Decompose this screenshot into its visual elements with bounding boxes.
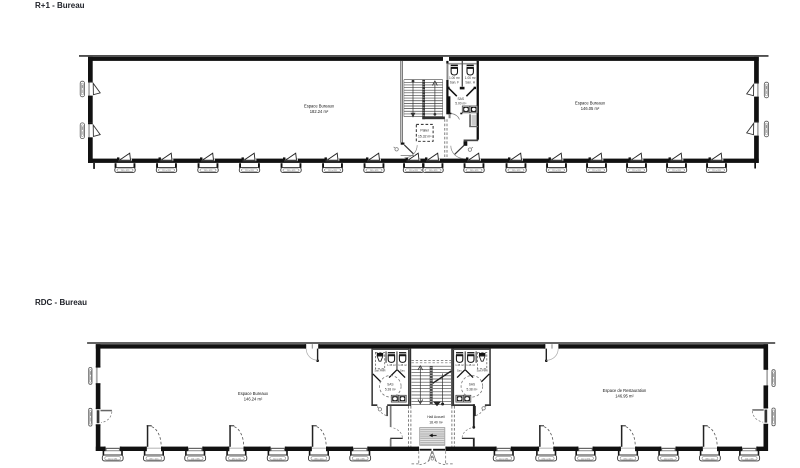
svg-text:San.PMR: San.PMR <box>374 368 385 372</box>
svg-text:San.: San. <box>457 368 463 372</box>
svg-text:San. F: San. F <box>450 81 459 85</box>
svg-text:SAS: SAS <box>469 382 475 386</box>
svg-text:182.24 m²: 182.24 m² <box>310 109 329 114</box>
svg-text:5.38 m²: 5.38 m² <box>466 388 477 392</box>
svg-text:SAS: SAS <box>387 382 393 386</box>
svg-text:1.45 m²: 1.45 m² <box>455 363 464 367</box>
svg-text:18.40 m²: 18.40 m² <box>429 421 443 425</box>
svg-text:San. H: San. H <box>465 81 475 85</box>
svg-text:Espace Bureaux: Espace Bureaux <box>304 104 334 109</box>
svg-text:R+1 - Bureau: R+1 - Bureau <box>35 1 85 10</box>
svg-text:5.00 m²: 5.00 m² <box>455 101 467 105</box>
svg-text:Espace Bureaux: Espace Bureaux <box>238 391 268 396</box>
svg-text:Espace de Restauration: Espace de Restauration <box>603 388 647 393</box>
svg-text:San.PMR: San.PMR <box>477 368 488 372</box>
svg-text:146.95 m²: 146.95 m² <box>615 393 634 398</box>
svg-text:5.38 m²: 5.38 m² <box>385 388 396 392</box>
svg-text:San.: San. <box>400 368 406 372</box>
svg-text:1.45 m²: 1.45 m² <box>466 363 475 367</box>
svg-text:RDC - Bureau: RDC - Bureau <box>35 298 87 307</box>
svg-text:146.05 m²: 146.05 m² <box>581 106 600 111</box>
svg-text:Hall Accueil: Hall Accueil <box>427 415 445 419</box>
svg-text:1.45 m²: 1.45 m² <box>387 363 396 367</box>
svg-text:1.00 m²: 1.00 m² <box>465 76 476 80</box>
svg-text:146.24 m²: 146.24 m² <box>244 396 263 401</box>
svg-text:15.32 m²: 15.32 m² <box>418 134 432 138</box>
svg-text:1.00 m²: 1.00 m² <box>449 76 460 80</box>
svg-text:Palier: Palier <box>420 129 430 133</box>
svg-text:Espace Bureaux: Espace Bureaux <box>575 101 605 106</box>
svg-text:1.45 m²: 1.45 m² <box>398 363 407 367</box>
